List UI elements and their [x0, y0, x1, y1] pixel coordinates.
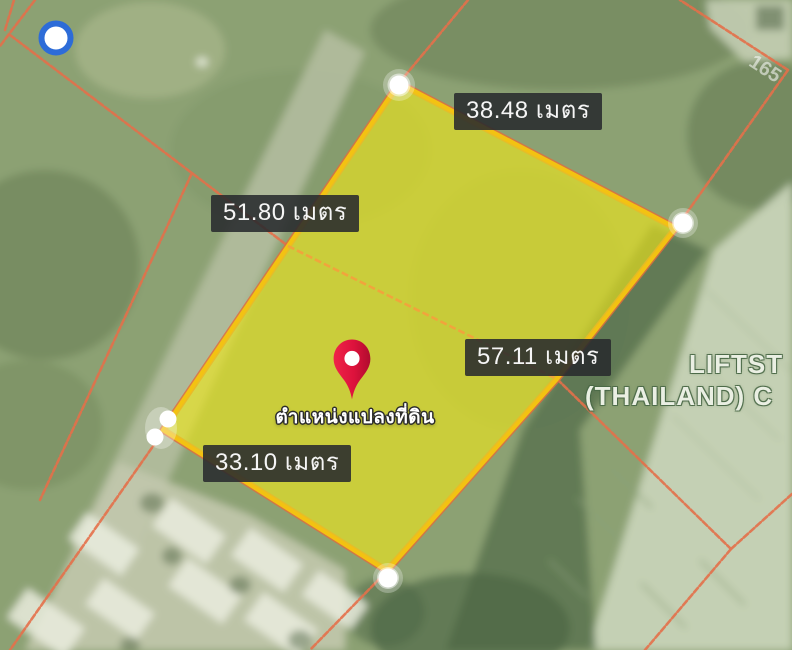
pin-label: ตำแหน่งแปลงที่ดิน: [255, 402, 455, 432]
pin-hole: [344, 351, 359, 366]
measurement-label: 51.80 เมตร: [211, 195, 359, 232]
pin-body: [334, 340, 371, 400]
building-name-label-line2: (THAILAND) C: [585, 381, 773, 412]
map-canvas: [0, 0, 792, 650]
measurement-label: 57.11 เมตร: [465, 339, 611, 376]
building-name-label-line1: LIFTST: [689, 349, 783, 380]
map-viewport[interactable]: 165 LIFTST (THAILAND) C 38.48 เมตร 51.80…: [0, 0, 792, 650]
vertex-marker[interactable]: [668, 208, 698, 238]
measurement-label: 33.10 เมตร: [203, 445, 351, 482]
vertex-marker[interactable]: [145, 407, 177, 449]
measurement-label: 38.48 เมตร: [454, 93, 602, 130]
vertex-marker[interactable]: [383, 69, 415, 101]
location-pin-icon[interactable]: [331, 338, 373, 402]
poi-marker[interactable]: [42, 24, 71, 53]
vertex-marker[interactable]: [373, 563, 403, 593]
